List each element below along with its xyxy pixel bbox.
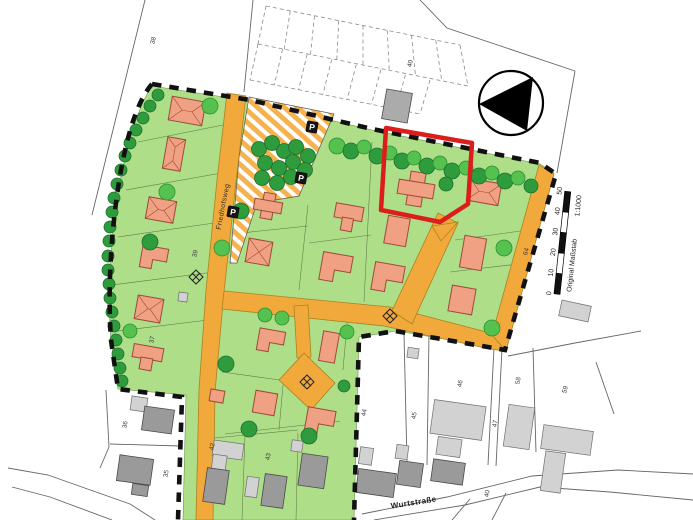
existing-building [245,476,260,497]
site-plan-map: PPP 38403964373635424344454647585940Frie… [0,0,693,520]
parking-stall-line [250,44,258,80]
parking-stall-line [387,30,389,70]
tree [419,158,435,174]
tree [497,173,513,189]
parcel-number-label: 46 [456,379,464,388]
parcel-line [100,390,109,468]
parcel-number-label: 44 [360,408,368,417]
parcel-line [420,0,575,71]
house-wing [340,217,353,232]
street-name-wurtstrasse: Wurtstraße [390,494,437,510]
parcel-line [496,349,502,466]
scale-bar: 0 10 20 30 40 50 Original Maßstab 1:1000 [546,186,584,297]
existing-building [203,468,230,505]
tree [218,356,234,372]
existing-building [396,460,423,487]
house [209,389,225,403]
existing-building [356,468,397,497]
parking-sign: P [306,121,319,134]
existing-building [407,347,419,358]
scale-tick: 30 [552,227,560,236]
scale-bar-ratio: 1:1000 [574,195,583,217]
scale-tick: 40 [554,207,562,216]
house [145,197,176,224]
existing-building [131,483,148,496]
parcel-line [488,348,494,465]
tree [275,311,289,325]
tree [511,171,525,185]
parcel-line [110,444,180,446]
tree [130,124,142,136]
tree [343,143,359,159]
parcel-number-label: 45 [410,411,418,420]
tree [340,325,354,339]
tree [142,234,158,250]
parking-stall-line [412,35,416,75]
tree [159,184,175,200]
parking-stall-line [311,16,315,55]
tree [524,179,538,193]
house [245,238,273,266]
parcel-number-label: 58 [514,376,522,385]
parking-stall-line [299,54,308,89]
parking-stall-line [436,40,442,81]
existing-building [116,455,153,485]
house [134,295,164,323]
scale-tick: 50 [556,186,564,195]
existing-building [431,459,466,485]
tree [471,168,487,184]
tree [485,166,499,180]
existing-building [540,451,565,493]
tree [202,98,218,114]
parcel-number-label: 35 [162,469,170,478]
tree [152,89,164,101]
house-body [384,215,411,246]
house [384,215,411,246]
tree [338,380,350,392]
parcel-number-label: 40 [406,59,415,68]
existing-building [559,300,592,322]
parking-stall-line [460,45,468,86]
tree [137,112,149,124]
parking-stall-line [274,49,282,85]
parcel-line [404,334,407,462]
parcel-line [533,348,536,452]
tree [214,240,230,256]
house [168,96,206,126]
parcel-line [427,334,429,465]
existing-building [141,406,174,434]
house-body [209,389,225,403]
parking-sign: P [227,206,240,219]
existing-building [541,425,594,456]
parking-stall-line [347,65,356,100]
tree [144,100,156,112]
parcel-line [452,499,470,520]
parking-stall-line [284,11,290,49]
tree [329,138,345,154]
street-south-stub [294,305,311,358]
existing-building [436,436,462,457]
house [448,285,476,315]
parcel-line [508,331,641,356]
parcel-line [244,0,253,92]
tree [496,240,512,256]
tree [255,171,270,186]
parking-stall-line [337,21,339,60]
house [252,390,277,415]
house-wing [139,357,153,371]
tree [258,156,273,171]
house-body [448,285,476,315]
house-body [252,390,277,415]
parcel-number-label: 36 [121,420,129,429]
existing-building [261,474,287,509]
parking-stall-grid [250,6,468,114]
tree [301,149,316,164]
scale-tick: 20 [550,248,558,257]
parking-sign: P [295,172,308,185]
scale-bar-label: Original Maßstab [566,238,579,292]
scale-tick: 10 [548,268,556,277]
parcel-line [596,362,614,414]
parcel-line [557,71,575,173]
parcel-number-label: 59 [561,385,570,394]
tree [258,308,272,322]
parking-stall-line [420,80,430,114]
existing-building [291,440,303,452]
existing-building [503,404,535,449]
site-plan-page: PPP 38403964373635424344454647585940Frie… [0,0,693,520]
parcel-number-label: 38 [149,36,158,45]
parcel-number-label: 40 [483,489,491,498]
tree [123,324,137,338]
tree [444,163,460,179]
existing-building [298,453,328,488]
existing-building [178,292,188,302]
existing-building [382,89,413,123]
existing-building [395,444,409,460]
tree [439,177,453,191]
tree [241,421,257,437]
existing-building [358,447,373,466]
parking-stall-line [371,70,380,105]
tree [301,428,317,444]
north-arrow-icon [479,71,543,135]
parking-stall-line [323,59,332,94]
tree [484,320,500,336]
existing-building [430,400,486,441]
tree [270,176,285,191]
tree [357,140,371,154]
scale-tick: 0 [546,291,553,296]
parking-stall-line [258,6,266,44]
tree [407,151,421,165]
